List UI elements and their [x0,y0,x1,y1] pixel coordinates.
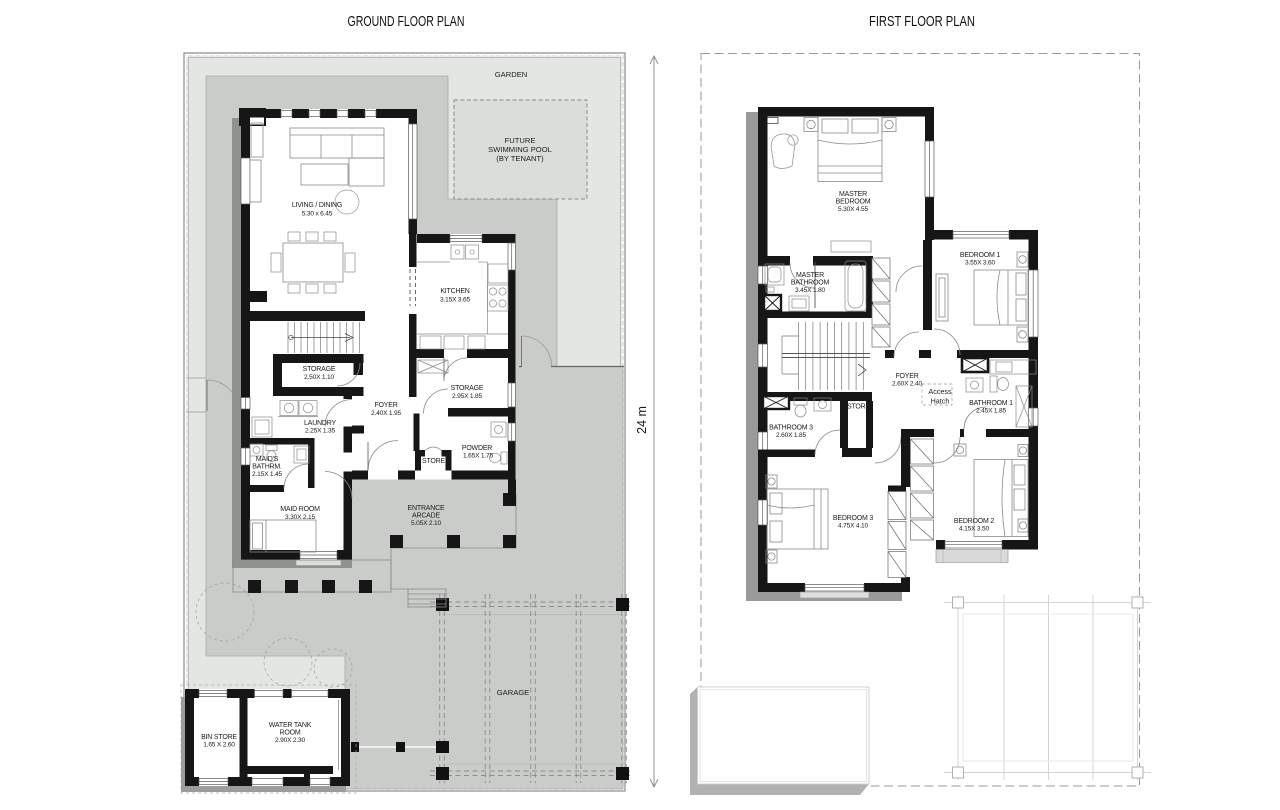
svg-text:2.60X 2.40: 2.60X 2.40 [892,381,922,388]
svg-text:BEDROOM 3: BEDROOM 3 [833,515,874,522]
svg-text:3.30X 2.15: 3.30X 2.15 [285,514,315,521]
svg-text:STORAGE: STORAGE [451,385,484,392]
svg-text:GARDEN: GARDEN [495,70,528,79]
svg-text:SWIMMING POOL: SWIMMING POOL [488,145,552,154]
svg-text:GARAGE: GARAGE [497,688,530,697]
svg-text:BATHROOM 3: BATHROOM 3 [769,425,813,432]
svg-text:4.15X 3.50: 4.15X 3.50 [959,526,989,533]
svg-text:ARCADE: ARCADE [412,513,441,520]
svg-text:BEDROOM: BEDROOM [836,199,871,206]
svg-text:STORE: STORE [847,404,871,411]
svg-text:Access: Access [928,387,952,396]
svg-text:MASTER: MASTER [796,272,824,279]
svg-text:POWDER: POWDER [462,445,492,452]
svg-text:BATHRM.: BATHRM. [252,464,282,471]
svg-text:MASTER: MASTER [839,191,867,198]
svg-text:KITCHEN: KITCHEN [440,288,469,295]
svg-text:2.40X 1.95: 2.40X 1.95 [371,410,401,417]
svg-text:LAUNDRY: LAUNDRY [304,420,336,427]
svg-text:2.50X 1.10: 2.50X 1.10 [304,374,334,381]
svg-text:WATER TANK: WATER TANK [269,722,312,729]
svg-text:GROUND FLOOR PLAN: GROUND FLOOR PLAN [348,14,465,30]
svg-text:2.25X 1.35: 2.25X 1.35 [305,428,335,435]
svg-text:MAID'S: MAID'S [256,456,279,463]
svg-text:BATHROOM: BATHROOM [791,280,830,287]
svg-text:3.55X 3.60: 3.55X 3.60 [965,260,995,267]
svg-text:2.15X 1.45: 2.15X 1.45 [252,471,282,478]
svg-text:3.15X 3.65: 3.15X 3.65 [440,297,470,304]
svg-text:STORE: STORE [422,458,446,465]
svg-text:24 m: 24 m [635,406,649,434]
svg-text:BEDROOM 2: BEDROOM 2 [954,518,995,525]
svg-text:5.30 x 6.45: 5.30 x 6.45 [302,211,333,218]
svg-text:Hatch: Hatch [931,397,950,406]
svg-text:MAID ROOM: MAID ROOM [280,506,320,513]
svg-text:BIN STORE: BIN STORE [201,734,237,741]
svg-text:2.90X 2.30: 2.90X 2.30 [275,737,305,744]
svg-text:1.65 X 2.60: 1.65 X 2.60 [203,742,235,749]
svg-text:3.45X 1.80: 3.45X 1.80 [795,287,825,294]
svg-text:2.60X 1.85: 2.60X 1.85 [776,432,806,439]
svg-text:ENTRANCE: ENTRANCE [408,505,445,512]
svg-text:FOYER: FOYER [895,373,918,380]
svg-text:2.45X 1.85: 2.45X 1.85 [976,408,1006,415]
svg-text:2.95X 1.85: 2.95X 1.85 [452,393,482,400]
svg-text:5.05X 2.10: 5.05X 2.10 [411,520,441,527]
svg-text:ROOM: ROOM [280,730,301,737]
svg-text:FOYER: FOYER [374,402,397,409]
svg-text:BEDROOM 1: BEDROOM 1 [960,252,1001,259]
svg-text:FUTURE: FUTURE [505,136,536,145]
svg-text:5.30X 4.55: 5.30X 4.55 [838,206,868,213]
svg-text:(BY TENANT): (BY TENANT) [496,154,544,163]
svg-text:LIVING / DINING: LIVING / DINING [292,202,342,209]
svg-text:4.75X 4.10: 4.75X 4.10 [838,523,868,530]
svg-text:FIRST FLOOR PLAN: FIRST FLOOR PLAN [869,14,975,30]
svg-text:1.65X 1.75: 1.65X 1.75 [463,453,493,460]
svg-text:STORAGE: STORAGE [303,366,336,373]
svg-text:BATHROOM 1: BATHROOM 1 [969,400,1013,407]
